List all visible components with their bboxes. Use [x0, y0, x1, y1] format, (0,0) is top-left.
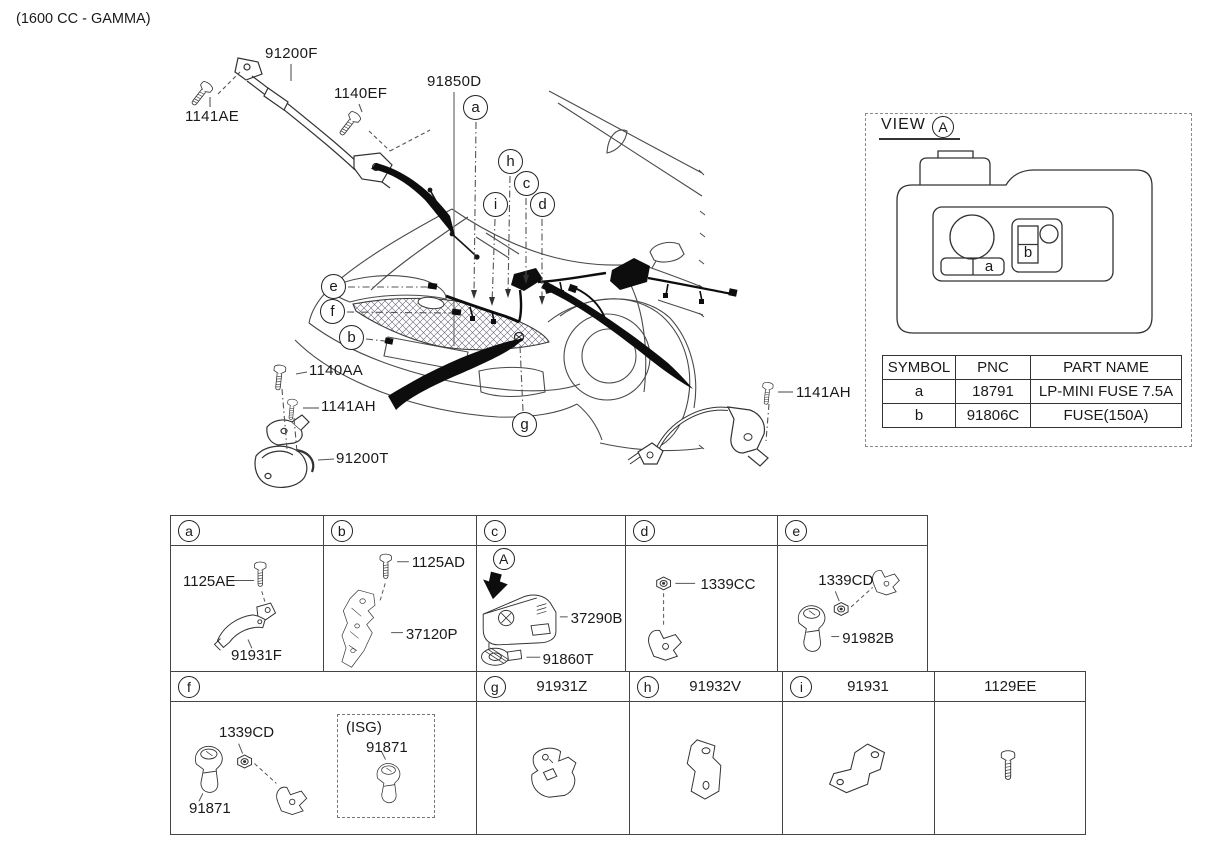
- part-cell-d: d 1339CC: [625, 515, 778, 672]
- view-a-ref-callout: A: [932, 116, 954, 138]
- label-part: 37120P: [406, 626, 458, 643]
- label-part: 91931Z: [516, 678, 622, 695]
- part-cell-j: 1129EE: [934, 671, 1086, 835]
- part-cell-e: e 1339CD 91982B: [777, 515, 928, 672]
- parts-grid-row-2: f 1339CD 91871 (ISG) 91871: [170, 671, 1086, 835]
- label-battery-cable: 91200F: [265, 45, 318, 62]
- isg-variant-box: (ISG) 91871: [337, 714, 435, 818]
- cell-letter-h: h: [637, 676, 659, 698]
- col-part-name: PART NAME: [1031, 356, 1182, 380]
- part-cell-f: f 1339CD 91871 (ISG) 91871: [170, 671, 477, 835]
- part-cell-c: c A 37290B 91860T: [476, 515, 627, 672]
- label-ground-cable-left: 91200T: [336, 450, 389, 467]
- callout-b: b: [339, 325, 364, 350]
- view-a-underline: [879, 138, 960, 140]
- cell-letter-c: c: [484, 520, 506, 542]
- part-cell-a: a 1125AE 91931F: [170, 515, 324, 672]
- cell-letter-f: f: [178, 676, 200, 698]
- col-symbol: SYMBOL: [883, 356, 956, 380]
- table-row: b 91806C FUSE(150A): [883, 404, 1182, 428]
- label-part: 91871: [189, 800, 231, 817]
- callout-a: a: [463, 95, 488, 120]
- part-cell-b: b 1125AD 37120P: [323, 515, 477, 672]
- label-bolt: 1125AE: [183, 573, 235, 590]
- label-bolt-1141ae: 1141AE: [185, 108, 239, 125]
- label-front-harness: 91850D: [427, 73, 481, 90]
- label-nut: 1339CD: [219, 724, 274, 741]
- cell-symbol: b: [883, 404, 956, 428]
- part-cell-h: h 91932V: [629, 671, 784, 835]
- fusebox-slot-a: a: [981, 258, 997, 275]
- page-title: (1600 CC - GAMMA): [16, 11, 151, 27]
- label-bolt-1140ef: 1140EF: [334, 85, 387, 102]
- part-cell-i: i 91931: [782, 671, 935, 835]
- label-part: 91982B: [842, 630, 894, 647]
- cell-part-name: LP-MINI FUSE 7.5A: [1031, 380, 1182, 404]
- callout-e: e: [321, 274, 346, 299]
- ground-cable-right-art: [628, 407, 768, 466]
- ground-cable-left-art: [255, 415, 313, 487]
- cell-pnc: 91806C: [956, 404, 1031, 428]
- cell-part-name: FUSE(150A): [1031, 404, 1182, 428]
- cell-symbol: a: [883, 380, 956, 404]
- callout-h: h: [498, 149, 523, 174]
- label-part: 37290B: [571, 610, 623, 627]
- cell-letter-b: b: [331, 520, 353, 542]
- label-part: 1129EE: [942, 678, 1078, 695]
- label-isg-part: 91871: [366, 739, 408, 756]
- bolt-icons: [188, 80, 773, 420]
- cell-letter-e: e: [785, 520, 807, 542]
- cell-letter-i: i: [790, 676, 812, 698]
- callout-g: g: [512, 412, 537, 437]
- callout-d: d: [530, 192, 555, 217]
- label-nut: 1339CD: [818, 572, 873, 589]
- battery-cable-art: [235, 58, 392, 188]
- view-a-arrow-icon: [483, 572, 508, 600]
- label-bolt-1141ah-right: 1141AH: [796, 384, 851, 401]
- view-a-ref-in-cell: A: [493, 548, 515, 570]
- fusebox-slot-b: b: [1021, 244, 1035, 261]
- cell-pnc: 18791: [956, 380, 1031, 404]
- table-header-row: SYMBOL PNC PART NAME: [883, 356, 1182, 380]
- label-bolt: 1125AD: [412, 554, 465, 571]
- parts-diagram-page: (1600 CC - GAMMA) 91200F 1141AE 1140EF 9…: [0, 0, 1217, 848]
- cell-letter-a: a: [178, 520, 200, 542]
- label-isg-tag: (ISG): [346, 719, 382, 736]
- parts-grid-row-1: a 1125AE 91931F b: [170, 515, 928, 672]
- label-bolt-1140aa: 1140AA: [309, 362, 363, 379]
- label-nut: 1339CC: [700, 576, 755, 593]
- label-part: 91931F: [231, 647, 282, 664]
- view-a-symbol-table: SYMBOL PNC PART NAME a 18791 LP-MINI FUS…: [882, 355, 1182, 428]
- cell-letter-g: g: [484, 676, 506, 698]
- part-cell-g: g 91931Z: [476, 671, 630, 835]
- table-row: a 18791 LP-MINI FUSE 7.5A: [883, 380, 1182, 404]
- callout-i: i: [483, 192, 508, 217]
- label-bolt-1141ah-left: 1141AH: [321, 398, 376, 415]
- label-sub-part: 91860T: [543, 651, 594, 668]
- cell-letter-d: d: [633, 520, 655, 542]
- label-part: 91932V: [669, 678, 776, 695]
- label-part: 91931: [822, 678, 927, 695]
- view-a-heading: VIEW: [881, 116, 926, 134]
- callout-c: c: [514, 171, 539, 196]
- callout-f: f: [320, 299, 345, 324]
- col-pnc: PNC: [956, 356, 1031, 380]
